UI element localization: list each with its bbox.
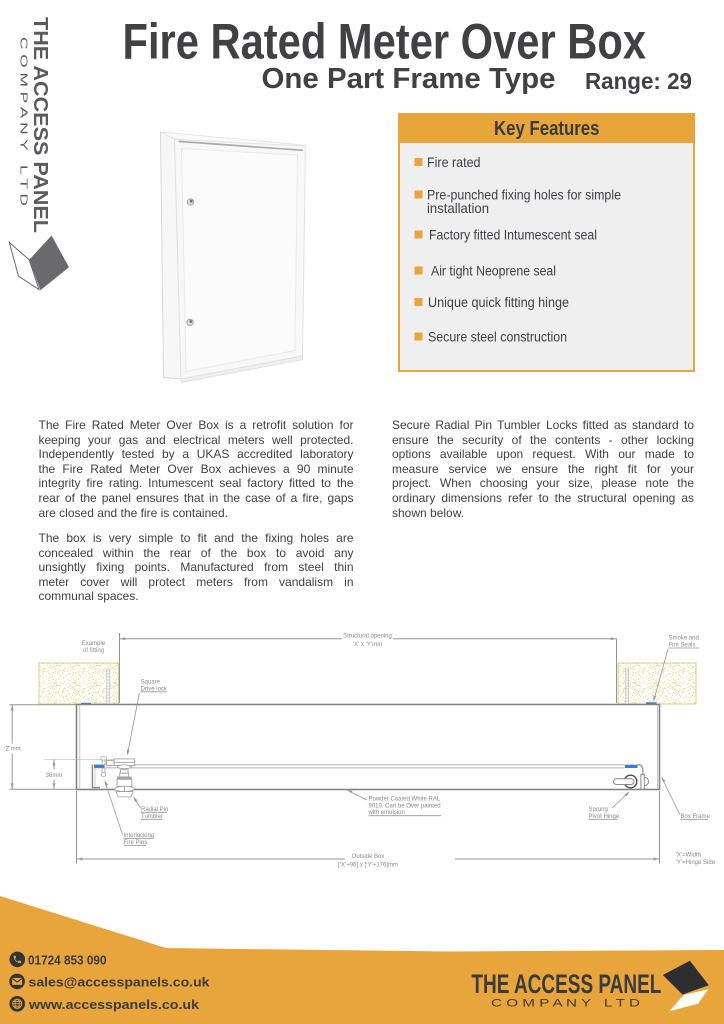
svg-text:Square: Square xyxy=(141,679,161,685)
svg-text:Range: 29: Range: 29 xyxy=(585,68,692,94)
svg-text:‘Z’mm: ‘Z’mm xyxy=(4,747,20,753)
svg-text:www.accesspanels.co.uk: www.accesspanels.co.uk xyxy=(28,997,200,1012)
svg-text:Unique quick fitting hinge: Unique quick fitting hinge xyxy=(428,294,569,310)
svg-text:‘X’=Width: ‘X’=Width xyxy=(676,853,702,859)
svg-text:C O M P A N Y L T D: C O M P A N Y L T D xyxy=(491,998,640,1010)
svg-text:Structural opening: Structural opening xyxy=(343,633,392,639)
svg-text:36mm: 36mm xyxy=(46,773,63,779)
svg-text:[‘X’+96] x [‘Y’+176]mm: [‘X’+96] x [‘Y’+176]mm xyxy=(338,863,398,869)
svg-text:9010. Can be Over painted: 9010. Can be Over painted xyxy=(369,803,441,809)
svg-text:One Part Frame Type: One Part Frame Type xyxy=(262,63,556,95)
svg-text:Example: Example xyxy=(82,641,106,647)
svg-text:Smoke and: Smoke and xyxy=(669,636,699,642)
svg-text:Secure steel construction: Secure steel construction xyxy=(428,329,567,345)
svg-text:THE ACCESS PANEL: THE ACCESS PANEL xyxy=(471,969,661,999)
svg-text:Fire Rated Meter Over Box: Fire Rated Meter Over Box xyxy=(123,14,647,70)
svg-text:Powder Coated White RAL: Powder Coated White RAL xyxy=(369,797,441,803)
svg-text:Sprung: Sprung xyxy=(589,807,608,813)
svg-text:installation: installation xyxy=(427,200,489,216)
svg-text:of fitting: of fitting xyxy=(83,648,104,654)
svg-text:‘X’ x ‘Y’mm: ‘X’ x ‘Y’mm xyxy=(353,642,382,648)
svg-text:Air tight Neoprene seal: Air tight Neoprene seal xyxy=(431,263,556,279)
svg-text:‘Y’=Hinge Side: ‘Y’=Hinge Side xyxy=(676,860,716,866)
svg-text:01724 853 090: 01724 853 090 xyxy=(28,953,107,968)
svg-text:Outside Box: Outside Box xyxy=(352,854,385,860)
svg-text:Fire rated: Fire rated xyxy=(427,154,481,170)
svg-text:sales@accesspanels.co.uk: sales@accesspanels.co.uk xyxy=(29,975,211,990)
svg-text:Factory fitted Intumescent sea: Factory fitted Intumescent seal xyxy=(429,227,597,243)
